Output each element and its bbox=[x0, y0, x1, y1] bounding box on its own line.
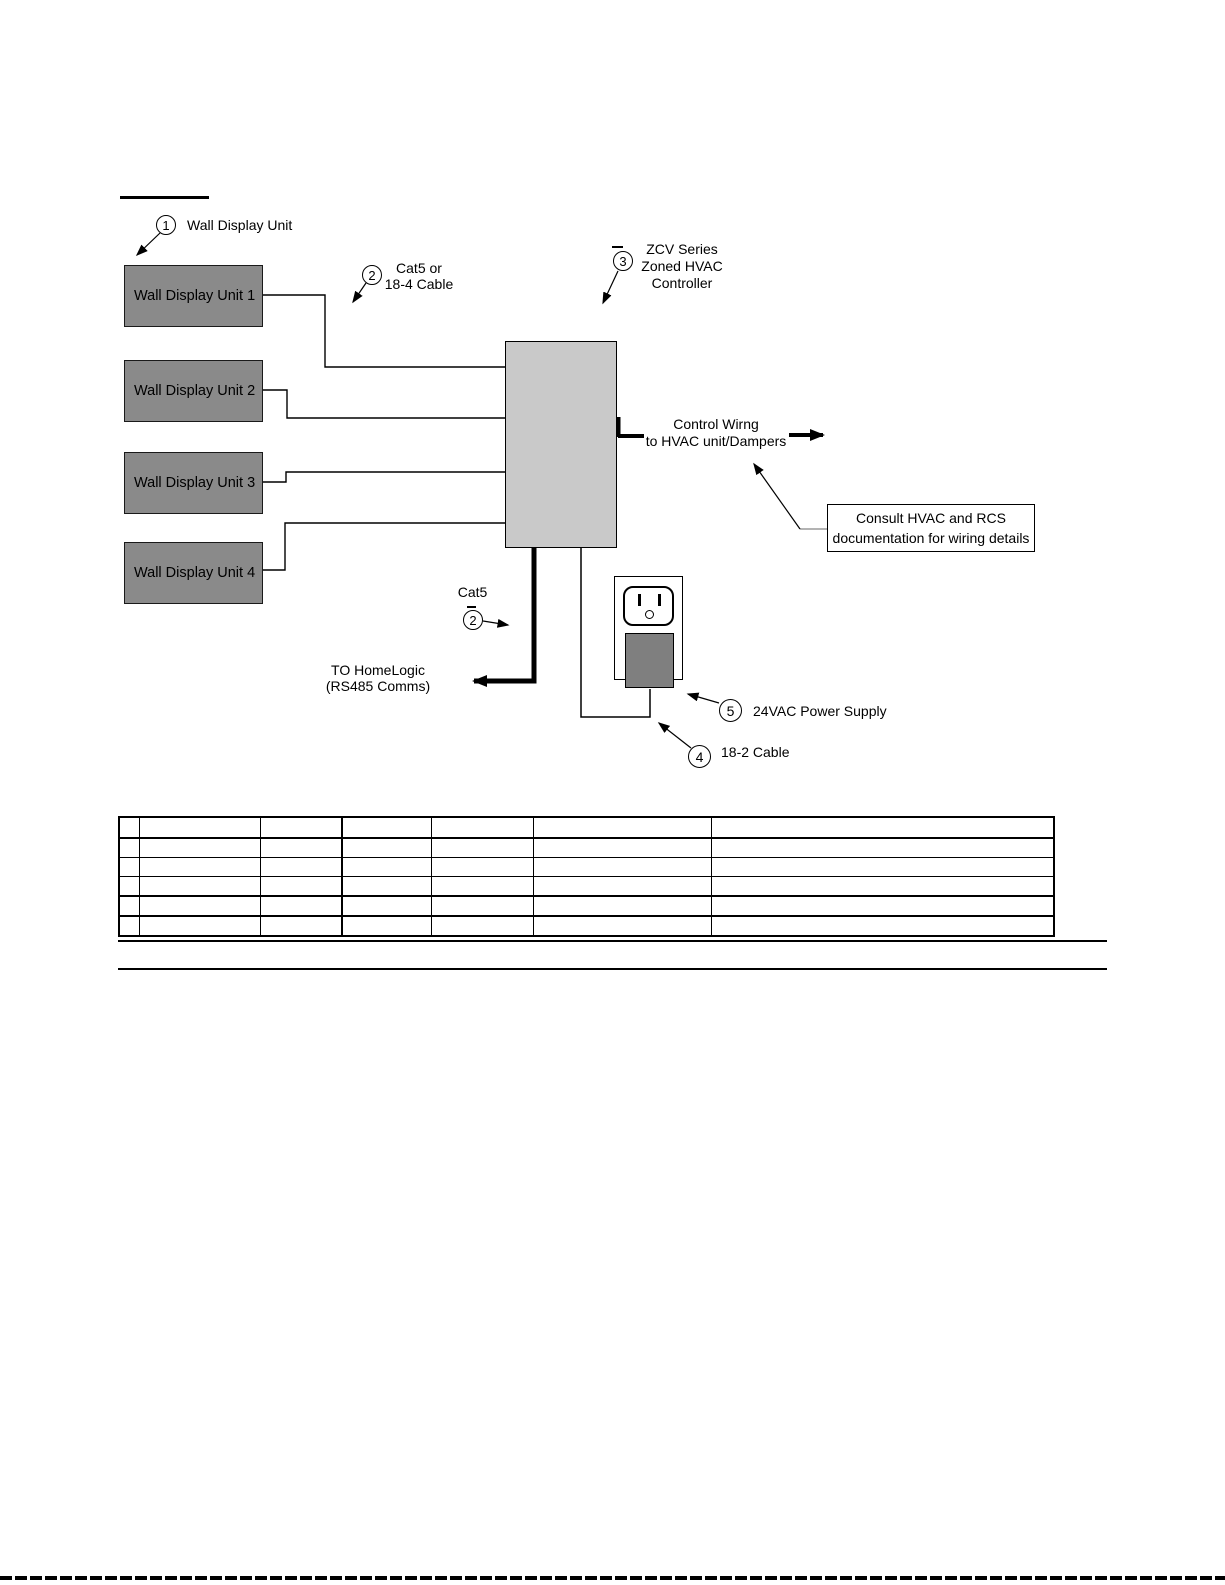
wall-display-unit-1-box: Wall Display Unit 1 bbox=[124, 265, 263, 327]
table-cell bbox=[342, 817, 431, 838]
table-cell bbox=[711, 896, 1054, 916]
leader-callout-5 bbox=[688, 694, 719, 703]
wire-unit3-to-controller bbox=[263, 472, 505, 482]
table-cell bbox=[119, 858, 139, 877]
consult-note-line1: Consult HVAC and RCS bbox=[828, 508, 1034, 528]
table-cell bbox=[431, 858, 533, 877]
wire-unit4-to-controller bbox=[263, 523, 505, 570]
wire-unit1-to-controller bbox=[263, 295, 505, 367]
diagram-connectors bbox=[0, 0, 1225, 1585]
zcv-controller-box bbox=[505, 341, 617, 548]
table-cell bbox=[260, 817, 342, 838]
wall-display-unit-3-label: Wall Display Unit 3 bbox=[134, 475, 255, 491]
leader-callout-3 bbox=[603, 271, 618, 303]
table-cell bbox=[260, 916, 342, 936]
leader-callout-4 bbox=[659, 723, 691, 748]
table-row bbox=[119, 838, 1054, 858]
table-cell bbox=[533, 877, 711, 897]
table-cell bbox=[260, 896, 342, 916]
table-cell bbox=[711, 877, 1054, 897]
table-cell bbox=[342, 916, 431, 936]
table-cell bbox=[139, 858, 260, 877]
wiring-diagram-page: 1 Wall Display Unit 2 Cat5 or 18-4 Cable… bbox=[0, 0, 1225, 1585]
control-wiring-label: Control Wirng to HVAC unit/Dampers bbox=[641, 416, 791, 450]
outlet-ground-hole bbox=[645, 610, 654, 619]
homelogic-label: TO HomeLogic (RS485 Comms) bbox=[316, 662, 440, 694]
page-bottom-dashed-border bbox=[0, 1576, 1225, 1580]
outlet-face-icon bbox=[623, 586, 674, 626]
wall-display-unit-1-label: Wall Display Unit 1 bbox=[134, 288, 255, 304]
wall-display-unit-4-label: Wall Display Unit 4 bbox=[134, 565, 255, 581]
table-cell bbox=[139, 817, 260, 838]
table-cell bbox=[533, 817, 711, 838]
wall-display-unit-4-box: Wall Display Unit 4 bbox=[124, 542, 263, 604]
callout-2-top-number: 2 bbox=[368, 269, 375, 282]
outlet-slot-left bbox=[638, 594, 641, 606]
table-cell bbox=[139, 838, 260, 858]
table-cell bbox=[119, 916, 139, 936]
callout-4-number: 4 bbox=[696, 750, 704, 764]
zcv-controller-label: ZCV Series Zoned HVAC Controller bbox=[632, 241, 732, 292]
heading-underline bbox=[120, 196, 209, 199]
table-cell bbox=[119, 838, 139, 858]
table-cell bbox=[711, 817, 1054, 838]
wall-display-unit-2-box: Wall Display Unit 2 bbox=[124, 360, 263, 422]
table-cell bbox=[260, 838, 342, 858]
table-cell bbox=[342, 896, 431, 916]
callout-2-bottom-tick bbox=[467, 606, 476, 608]
table-cell bbox=[119, 817, 139, 838]
table-row bbox=[119, 877, 1054, 897]
wire-unit2-to-controller bbox=[263, 390, 505, 418]
divider-line-2 bbox=[118, 968, 1107, 970]
table-cell bbox=[342, 877, 431, 897]
callout-3-badge: 3 bbox=[613, 251, 633, 271]
table-cell bbox=[431, 838, 533, 858]
table-cell bbox=[260, 858, 342, 877]
table-cell bbox=[711, 916, 1054, 936]
table-cell bbox=[533, 858, 711, 877]
cable-18-2-label: 18-2 Cable bbox=[721, 744, 790, 760]
table-cell bbox=[119, 877, 139, 897]
callout-1-badge: 1 bbox=[156, 215, 176, 235]
table-cell bbox=[711, 858, 1054, 877]
leader-callout-2-bottom bbox=[483, 621, 508, 625]
outlet-slot-right bbox=[658, 594, 661, 606]
table-row bbox=[119, 858, 1054, 877]
cat5-label: Cat5 bbox=[445, 584, 500, 600]
spec-table-body bbox=[119, 817, 1054, 936]
table-cell bbox=[119, 896, 139, 916]
spec-table bbox=[118, 816, 1055, 937]
callout-1-label: Wall Display Unit bbox=[187, 217, 292, 233]
table-cell bbox=[533, 838, 711, 858]
table-cell bbox=[431, 877, 533, 897]
cat5-or-18-4-cable-label: Cat5 or 18-4 Cable bbox=[377, 260, 461, 292]
callout-5-number: 5 bbox=[727, 704, 735, 718]
table-row bbox=[119, 817, 1054, 838]
table-cell bbox=[533, 916, 711, 936]
callout-5-badge: 5 bbox=[719, 699, 742, 722]
table-cell bbox=[139, 896, 260, 916]
leader-consult-note bbox=[754, 464, 800, 529]
table-cell bbox=[342, 858, 431, 877]
table-cell bbox=[711, 838, 1054, 858]
callout-2-bottom-badge: 2 bbox=[463, 610, 483, 630]
wall-display-unit-3-box: Wall Display Unit 3 bbox=[124, 452, 263, 514]
callout-4-badge: 4 bbox=[688, 745, 711, 768]
table-row bbox=[119, 896, 1054, 916]
callout-1-number: 1 bbox=[162, 219, 169, 232]
callout-3-number: 3 bbox=[619, 255, 626, 268]
wall-display-unit-2-label: Wall Display Unit 2 bbox=[134, 383, 255, 399]
callout-2-bottom-number: 2 bbox=[469, 614, 476, 627]
wire-cat5-to-homelogic bbox=[474, 546, 534, 681]
table-cell bbox=[139, 877, 260, 897]
table-cell bbox=[342, 838, 431, 858]
table-cell bbox=[431, 817, 533, 838]
callout-3-tick bbox=[612, 246, 623, 248]
table-cell bbox=[431, 916, 533, 936]
table-cell bbox=[260, 877, 342, 897]
power-supply-plug bbox=[625, 633, 674, 688]
consult-note-box: Consult HVAC and RCS documentation for w… bbox=[827, 504, 1035, 552]
table-row bbox=[119, 916, 1054, 936]
power-supply-label: 24VAC Power Supply bbox=[753, 703, 887, 719]
table-cell bbox=[431, 896, 533, 916]
leader-callout-2-top bbox=[353, 283, 366, 302]
consult-note-line2: documentation for wiring details bbox=[828, 528, 1034, 548]
table-cell bbox=[139, 916, 260, 936]
table-cell bbox=[533, 896, 711, 916]
leader-callout-1 bbox=[137, 233, 160, 255]
divider-line-1 bbox=[118, 940, 1107, 942]
